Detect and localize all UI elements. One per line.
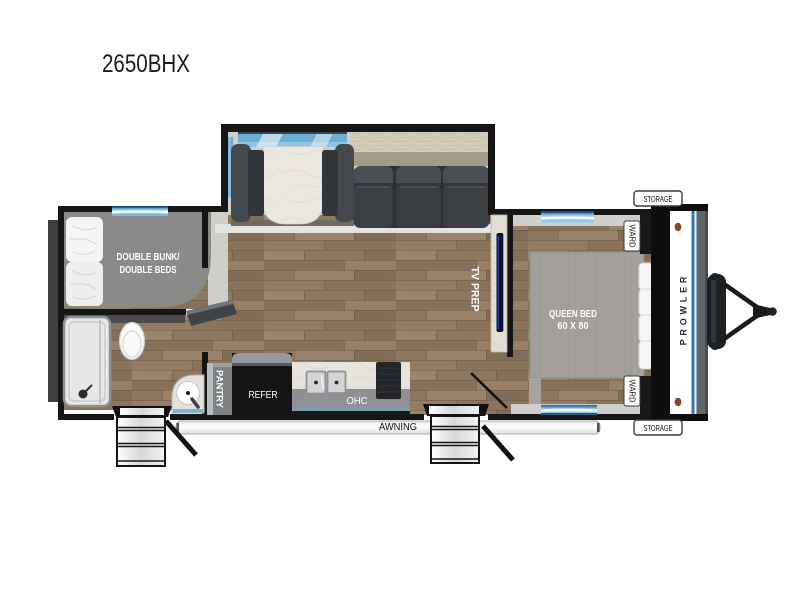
svg-text:OHC: OHC [347,396,368,407]
svg-text:DOUBLE BEDS: DOUBLE BEDS [120,264,177,276]
svg-text:WARD: WARD [628,380,637,403]
svg-text:PANTRY: PANTRY [214,370,225,409]
svg-text:60 X 80: 60 X 80 [558,320,589,332]
svg-text:2650BHX: 2650BHX [102,50,190,78]
svg-text:AWNING: AWNING [379,421,417,433]
svg-text:WARD: WARD [628,225,637,248]
svg-text:REFER: REFER [249,389,278,401]
svg-text:DOUBLE BUNK/: DOUBLE BUNK/ [117,251,180,263]
svg-text:STORAGE: STORAGE [644,195,673,204]
svg-text:TV PREP: TV PREP [469,267,481,312]
svg-text:STORAGE: STORAGE [644,424,673,433]
svg-text:QUEEN BED: QUEEN BED [549,308,597,320]
svg-text:PROWLER: PROWLER [679,273,689,346]
